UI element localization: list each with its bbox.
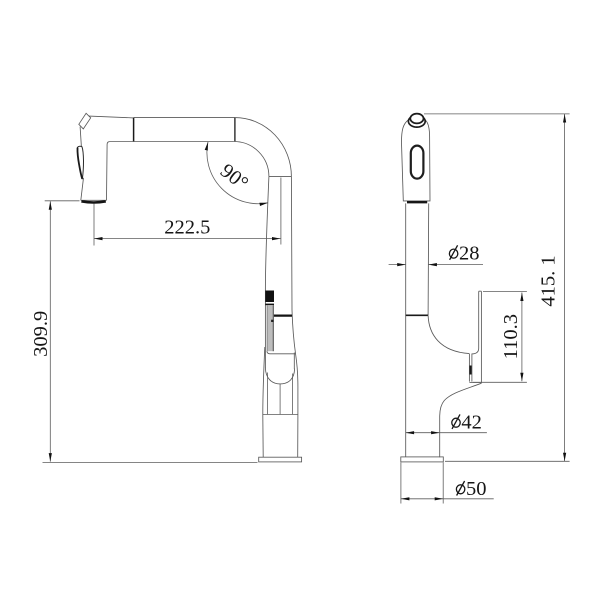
svg-text:42: 42	[461, 411, 482, 433]
svg-text:309.9: 309.9	[30, 311, 52, 357]
svg-text:28: 28	[459, 242, 480, 264]
svg-text:222.5: 222.5	[164, 216, 210, 238]
svg-text:50: 50	[466, 478, 487, 500]
svg-text:415. 1: 415. 1	[538, 255, 560, 306]
svg-text:110.3: 110.3	[500, 314, 522, 359]
